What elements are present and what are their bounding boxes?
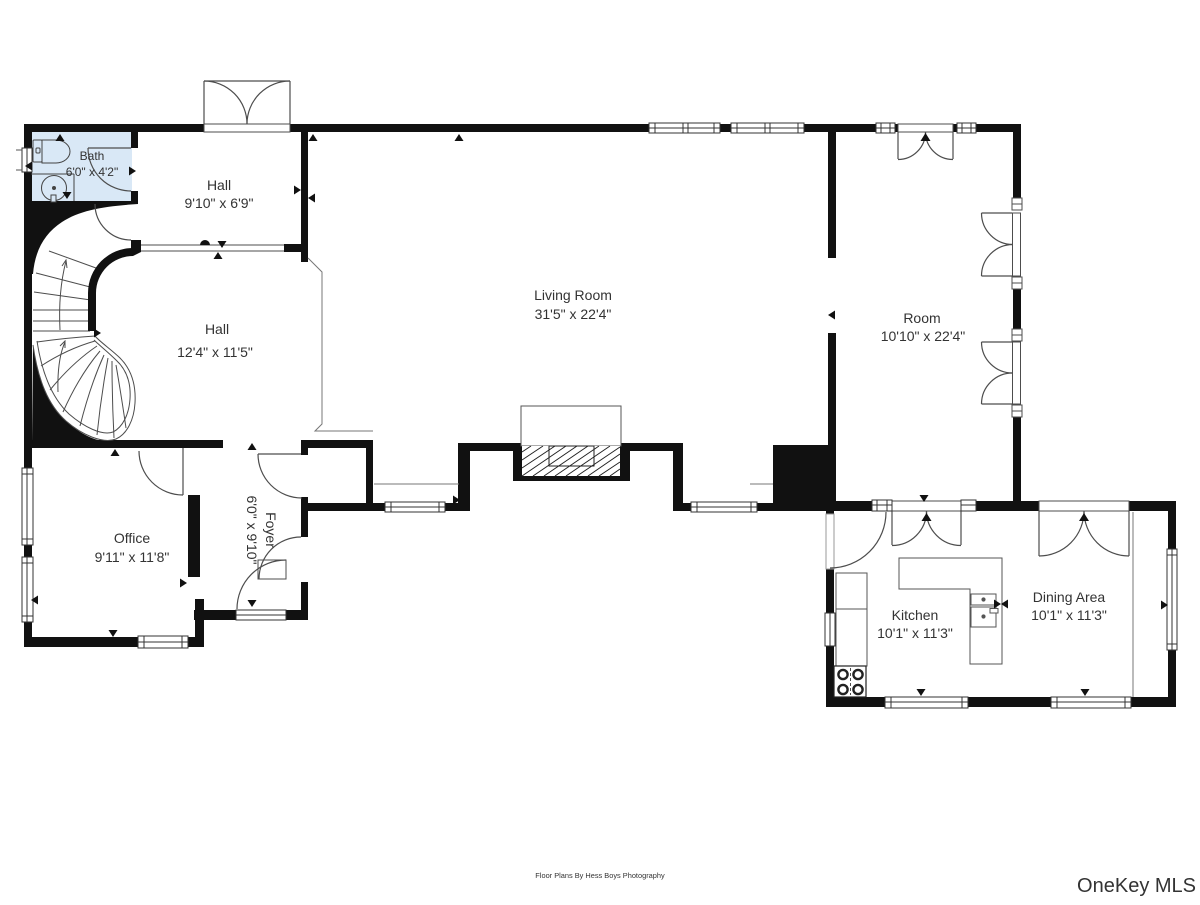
svg-text:6'0" x 4'2": 6'0" x 4'2": [66, 165, 118, 179]
svg-text:31'5" x 22'4": 31'5" x 22'4": [535, 306, 612, 322]
svg-text:Hall: Hall: [207, 177, 231, 193]
svg-text:Kitchen: Kitchen: [892, 607, 939, 623]
svg-text:10'10" x 22'4": 10'10" x 22'4": [881, 328, 966, 344]
svg-text:Office: Office: [114, 530, 151, 546]
svg-text:12'4" x 11'5": 12'4" x 11'5": [177, 344, 253, 360]
svg-text:Foyer: Foyer: [263, 512, 279, 548]
svg-text:Room: Room: [903, 310, 940, 326]
svg-text:Living Room: Living Room: [534, 287, 612, 303]
svg-text:10'1" x 11'3": 10'1" x 11'3": [1031, 607, 1107, 623]
svg-text:6'0" x 9'10": 6'0" x 9'10": [244, 496, 260, 565]
svg-text:Floor Plans By Hess Boys Photo: Floor Plans By Hess Boys Photography: [535, 871, 665, 880]
svg-text:Dining Area: Dining Area: [1033, 589, 1106, 605]
svg-text:Hall: Hall: [205, 321, 229, 337]
svg-text:9'10" x 6'9": 9'10" x 6'9": [185, 195, 254, 211]
svg-text:9'11" x 11'8": 9'11" x 11'8": [95, 549, 170, 565]
svg-text:Bath: Bath: [80, 149, 105, 163]
svg-text:OneKey MLS: OneKey MLS: [1077, 875, 1196, 897]
svg-text:10'1" x 11'3": 10'1" x 11'3": [877, 625, 953, 641]
